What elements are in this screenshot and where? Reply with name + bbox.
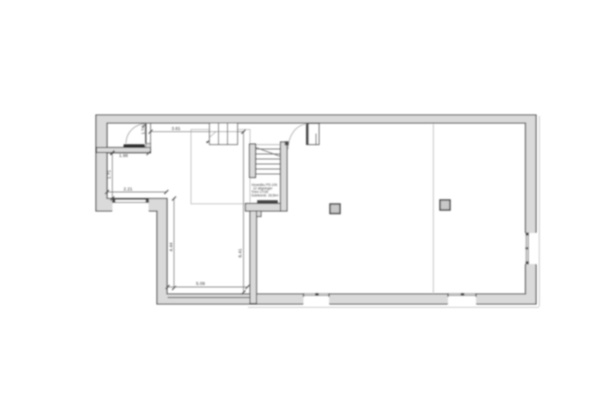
svg-text:5.09: 5.09: [196, 281, 205, 286]
svg-text:Gulvkonst. 16,5m²: Gulvkonst. 16,5m²: [251, 194, 279, 198]
svg-text:3.81: 3.81: [172, 126, 181, 131]
svg-text:2.21: 2.21: [124, 186, 133, 191]
svg-text:6.41: 6.41: [238, 248, 243, 257]
svg-text:1.71: 1.71: [107, 170, 112, 179]
svg-text:4.44: 4.44: [168, 242, 173, 251]
svg-text:1.74: 1.74: [141, 126, 146, 135]
svg-text:1.98: 1.98: [119, 153, 128, 158]
